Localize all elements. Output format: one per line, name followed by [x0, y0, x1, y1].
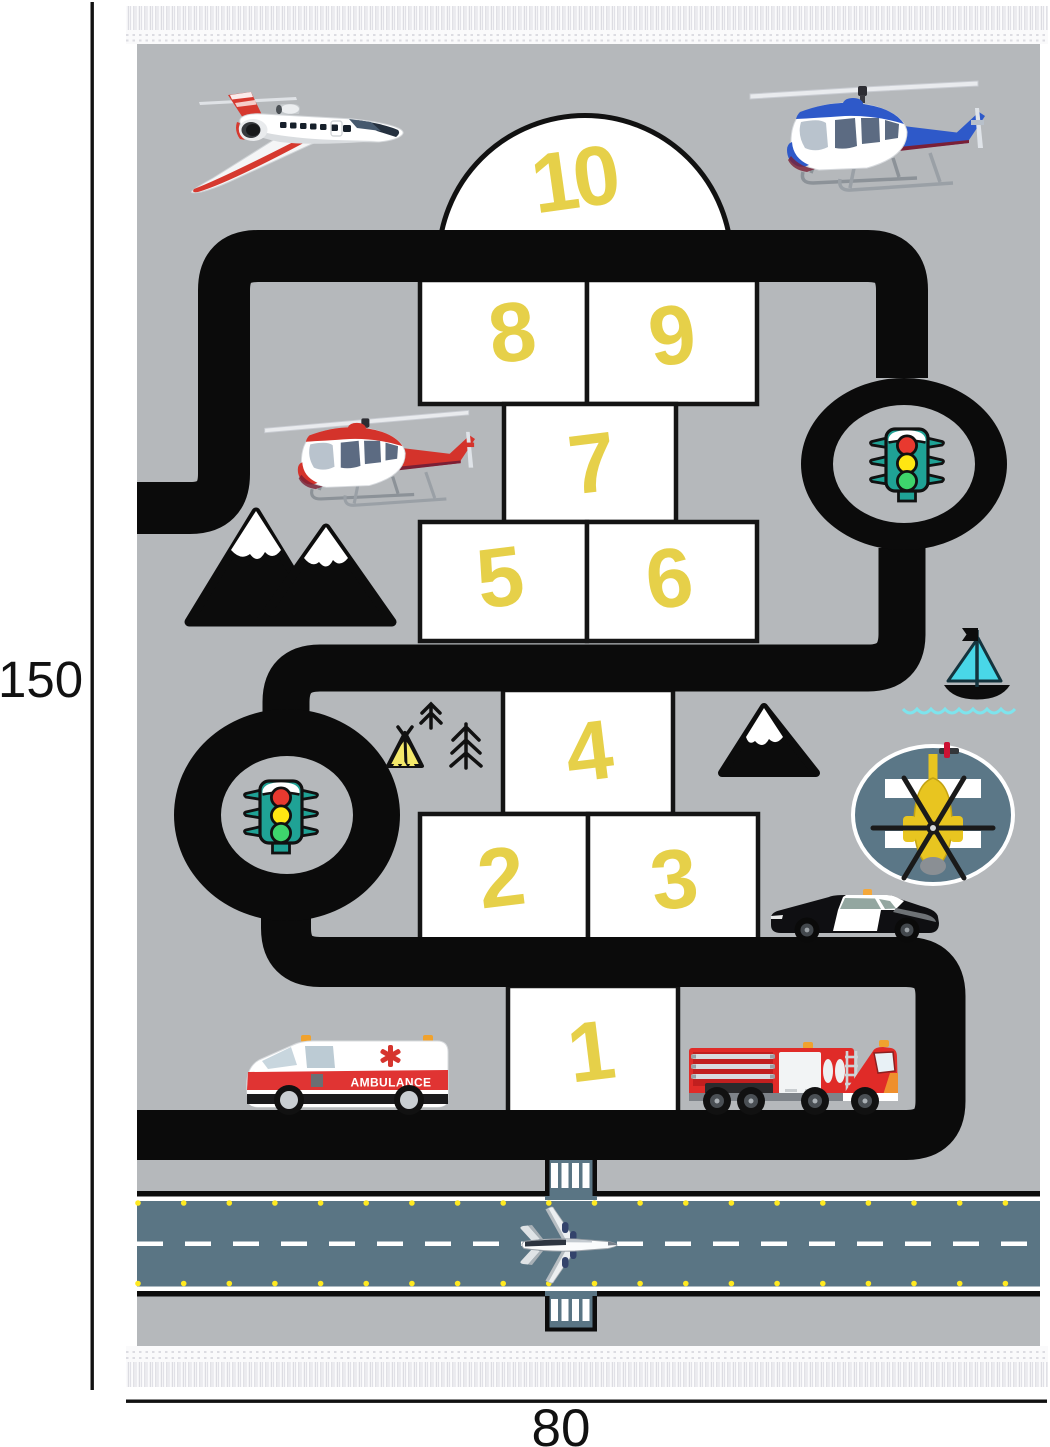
svg-text:10: 10 [525, 126, 623, 231]
svg-text:150: 150 [0, 651, 83, 708]
svg-text:AMBULANCE: AMBULANCE [351, 1076, 432, 1090]
svg-text:80: 80 [532, 1399, 591, 1447]
